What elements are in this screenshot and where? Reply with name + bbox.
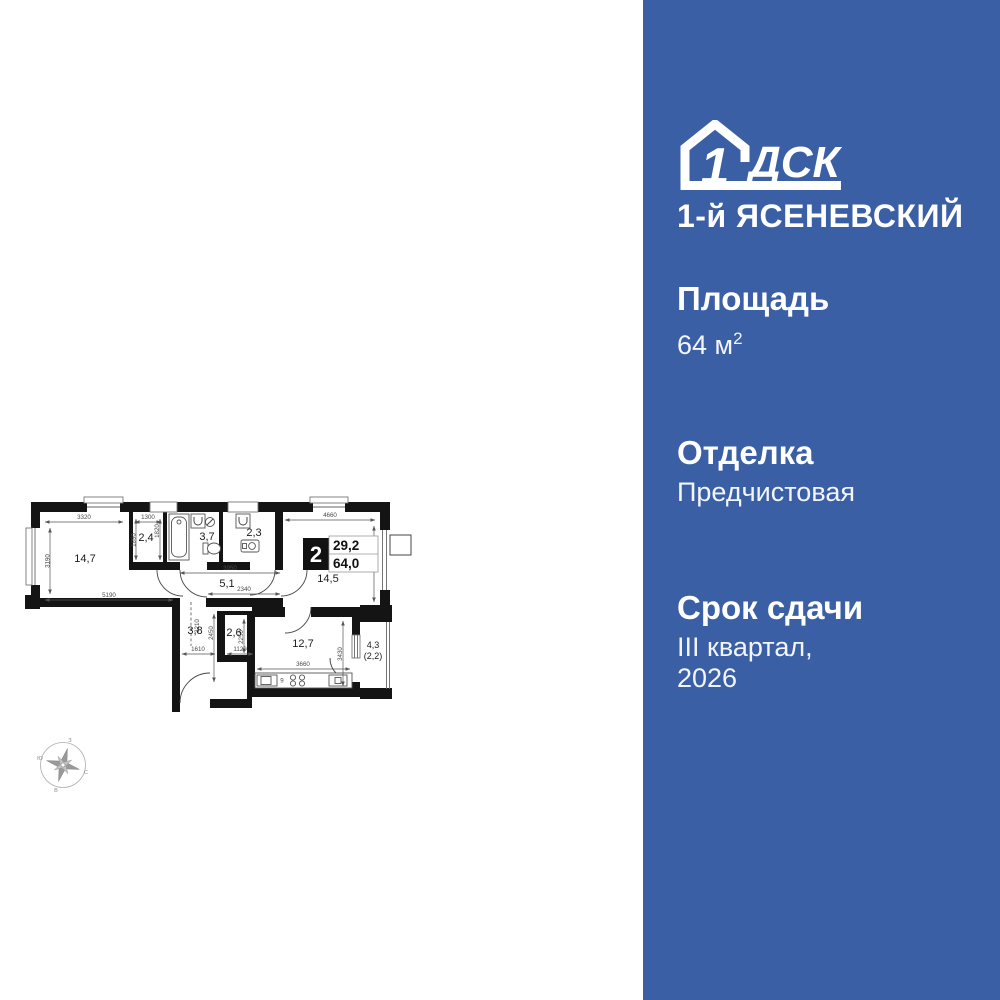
dim-3660: 3660	[296, 661, 310, 668]
wc-sink-icon	[236, 514, 250, 528]
room-label-wardrobe: 2,4	[138, 532, 153, 544]
dim-5190: 5190	[102, 592, 116, 599]
toilet-icon	[203, 543, 221, 554]
compass-west: З	[68, 738, 72, 744]
dim-2450: 2450	[208, 626, 215, 640]
vent-box-icon	[228, 502, 258, 512]
compass-south: Ю	[37, 756, 43, 762]
project-name: 1-й ЯСЕНЕВСКИЙ	[677, 198, 963, 235]
dim-2340: 2340	[237, 586, 251, 593]
bathtub-icon	[169, 514, 189, 560]
info-panel: 1 ДСК 1-й ЯСЕНЕВСКИЙ Площадь 64 м2 Отдел…	[643, 0, 1000, 1000]
room-label-bedroom: 14,5	[317, 573, 338, 585]
rooms-count: 2	[310, 542, 322, 567]
brand-logo: 1 ДСК	[679, 120, 909, 205]
dim-1610: 1610	[191, 646, 205, 653]
window-icon	[26, 528, 32, 585]
total-area-value: 64,0	[333, 556, 359, 571]
door-arc-wc	[250, 570, 275, 595]
door-arc-entrance	[180, 673, 210, 703]
kitchen-mark: 9	[280, 678, 284, 685]
dim-3320: 3320	[77, 514, 91, 521]
spec-finish: Отделка Предчистовая	[677, 434, 855, 508]
area-badge: 2 29,2 64,0	[303, 536, 378, 572]
spec-finish-value: Предчистовая	[677, 477, 855, 508]
room-label-bathroom: 3,7	[199, 531, 214, 543]
spec-area-label: Площадь	[677, 280, 829, 318]
room-label-balcony-reduced: (2,2)	[364, 651, 383, 661]
brand-logo-svg: 1 ДСК	[679, 120, 909, 200]
dim-1820: 1820	[154, 524, 161, 538]
spec-area: Площадь 64 м2	[677, 280, 829, 361]
floor-plan: 9 3320 1300 4660 3190 1890 1820 5190 395…	[23, 486, 423, 816]
spec-area-value: 64 м2	[677, 323, 829, 361]
ac-basket-icon	[390, 535, 411, 555]
washing-machine-icon	[191, 514, 205, 528]
dim-1300: 1300	[141, 514, 155, 521]
room-label-kitchen: 12,7	[292, 638, 313, 650]
door-arc-bedroom	[281, 570, 307, 596]
dim-3190: 3190	[45, 554, 52, 568]
window-icon	[84, 497, 123, 503]
dim-3430: 3430	[337, 647, 344, 661]
vent-box-icon	[150, 502, 177, 512]
logo-letters: ДСК	[745, 138, 843, 187]
room-label-corridor: 3,8	[187, 625, 202, 637]
door-arc-bathroom	[180, 570, 207, 597]
room-label-living: 14,7	[74, 553, 95, 565]
dim-1120: 1120	[233, 646, 247, 653]
dim-1890: 1890	[131, 533, 138, 547]
washer-drum-icon	[206, 518, 215, 527]
dim-3950: 3950	[223, 565, 237, 572]
square-sup: 2	[733, 329, 742, 348]
room-label-wc: 2,3	[246, 527, 261, 539]
kitchen-counter-icon: 9	[255, 673, 352, 688]
sink-icon	[241, 540, 259, 552]
living-area-value: 29,2	[333, 538, 359, 553]
spec-deadline: Срок сдачи III квартал, 2026	[677, 589, 863, 694]
compass-rose-icon: С Ю В З	[37, 738, 88, 794]
spec-finish-label: Отделка	[677, 434, 855, 472]
room-label-hall: 5,1	[219, 578, 234, 590]
door-arc-kitchen	[285, 607, 311, 633]
dim-4660: 4660	[323, 512, 337, 519]
room-label-balcony: 4,3	[367, 640, 380, 650]
compass-north: С	[84, 770, 88, 776]
room-label-closet: 2,6	[226, 627, 241, 639]
spec-deadline-value: III квартал, 2026	[677, 632, 863, 694]
spec-deadline-label: Срок сдачи	[677, 589, 863, 627]
logo-number: 1	[701, 138, 730, 196]
compass-east: В	[54, 788, 58, 794]
floor-plan-svg: 9 3320 1300 4660 3190 1890 1820 5190 395…	[23, 486, 423, 816]
window-icon	[310, 497, 348, 503]
door-arc-living	[157, 570, 183, 596]
